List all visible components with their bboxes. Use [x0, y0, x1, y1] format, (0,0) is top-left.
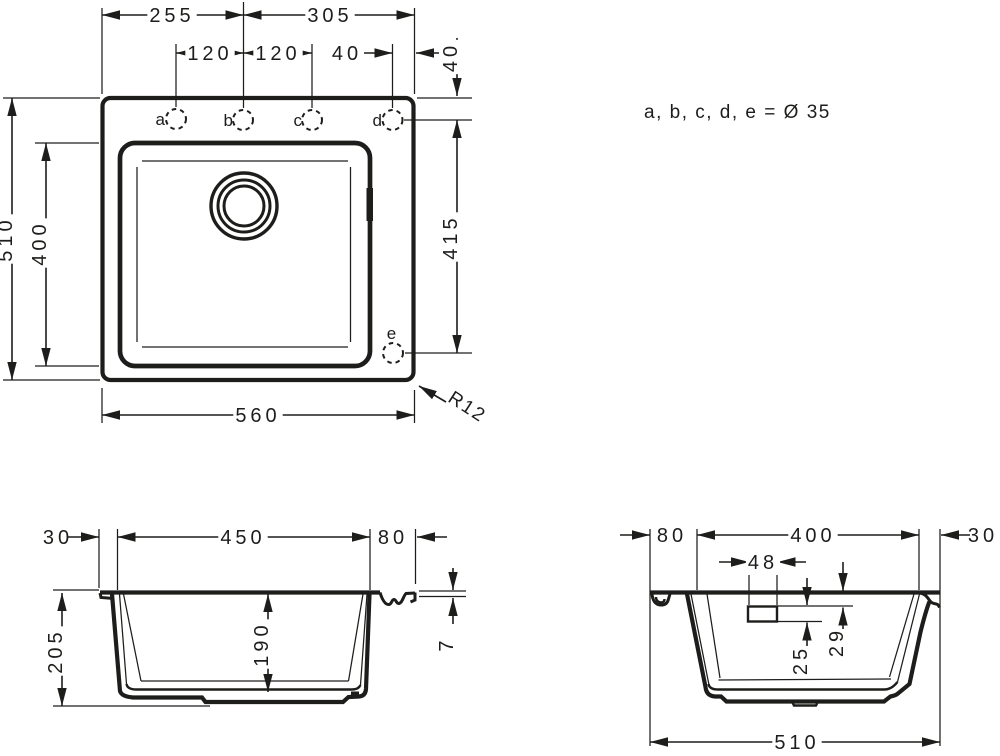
dim-120-bc: 120 [255, 43, 300, 65]
tap-channel-groove [380, 593, 415, 605]
hole-c [302, 110, 322, 130]
drain-boss [351, 692, 359, 698]
front-section-view: 30 450 80 205 190 7 [43, 526, 466, 706]
hole-b [233, 110, 253, 130]
hole-b-label: b [224, 111, 234, 130]
dim-205: 205 [45, 628, 67, 673]
dim-7: 7 [436, 636, 458, 651]
dim-510-side: 510 [774, 732, 819, 754]
bowl-inner-edge-lines [137, 161, 351, 347]
dim-80-front: 80 [378, 527, 408, 549]
overflow-marker [367, 188, 374, 221]
hole-diameter-note: a, b, c, d, e = Ø 35 [644, 102, 831, 123]
hole-a-label: a [156, 110, 166, 129]
dim-400-side: 400 [790, 525, 835, 547]
bowl-section-outline [112, 594, 370, 702]
dim-48: 48 [748, 552, 778, 574]
sink-outline [103, 98, 414, 380]
dim-25: 25 [790, 645, 812, 675]
top-view-extension-lines [3, 2, 472, 423]
sink-dimension-drawing: a b c d e [0, 0, 1000, 756]
dim-415: 415 [440, 214, 462, 259]
dim-190: 190 [251, 621, 273, 666]
dim-80-side: 80 [657, 525, 687, 547]
dim-120-ab: 120 [187, 43, 232, 65]
hole-d-label: d [373, 111, 383, 130]
drain-circles [211, 173, 277, 239]
dim-29: 29 [826, 627, 848, 657]
technical-drawing-page: a b c d e [0, 0, 1000, 756]
dim-305: 305 [307, 5, 352, 27]
dim-255: 255 [149, 5, 194, 27]
hole-e-label: e [387, 324, 397, 343]
top-view: a b c d e [0, 2, 831, 428]
dim-40-horizontal: 40 [332, 43, 362, 65]
hole-c-label: c [294, 111, 304, 130]
top-view-dimension-lines [12, 15, 457, 415]
r12-leader-line [419, 386, 446, 402]
side-section-view: 80 400 30 48 25 29 510 [620, 524, 998, 755]
dim-30-side: 30 [968, 525, 998, 547]
corner-radius-label: R12 [444, 387, 490, 427]
dim-450: 450 [220, 527, 265, 549]
dim-400: 400 [29, 220, 51, 265]
dim-30-front: 30 [43, 527, 73, 549]
dim-40-vertical: 40 [440, 42, 462, 72]
dim-560: 560 [235, 405, 280, 427]
hole-d [383, 110, 403, 130]
hole-a [166, 109, 186, 129]
overflow-cutout [748, 607, 777, 622]
dim-510: 510 [0, 216, 17, 261]
bowl-outline [120, 143, 370, 366]
hole-e [383, 343, 403, 363]
